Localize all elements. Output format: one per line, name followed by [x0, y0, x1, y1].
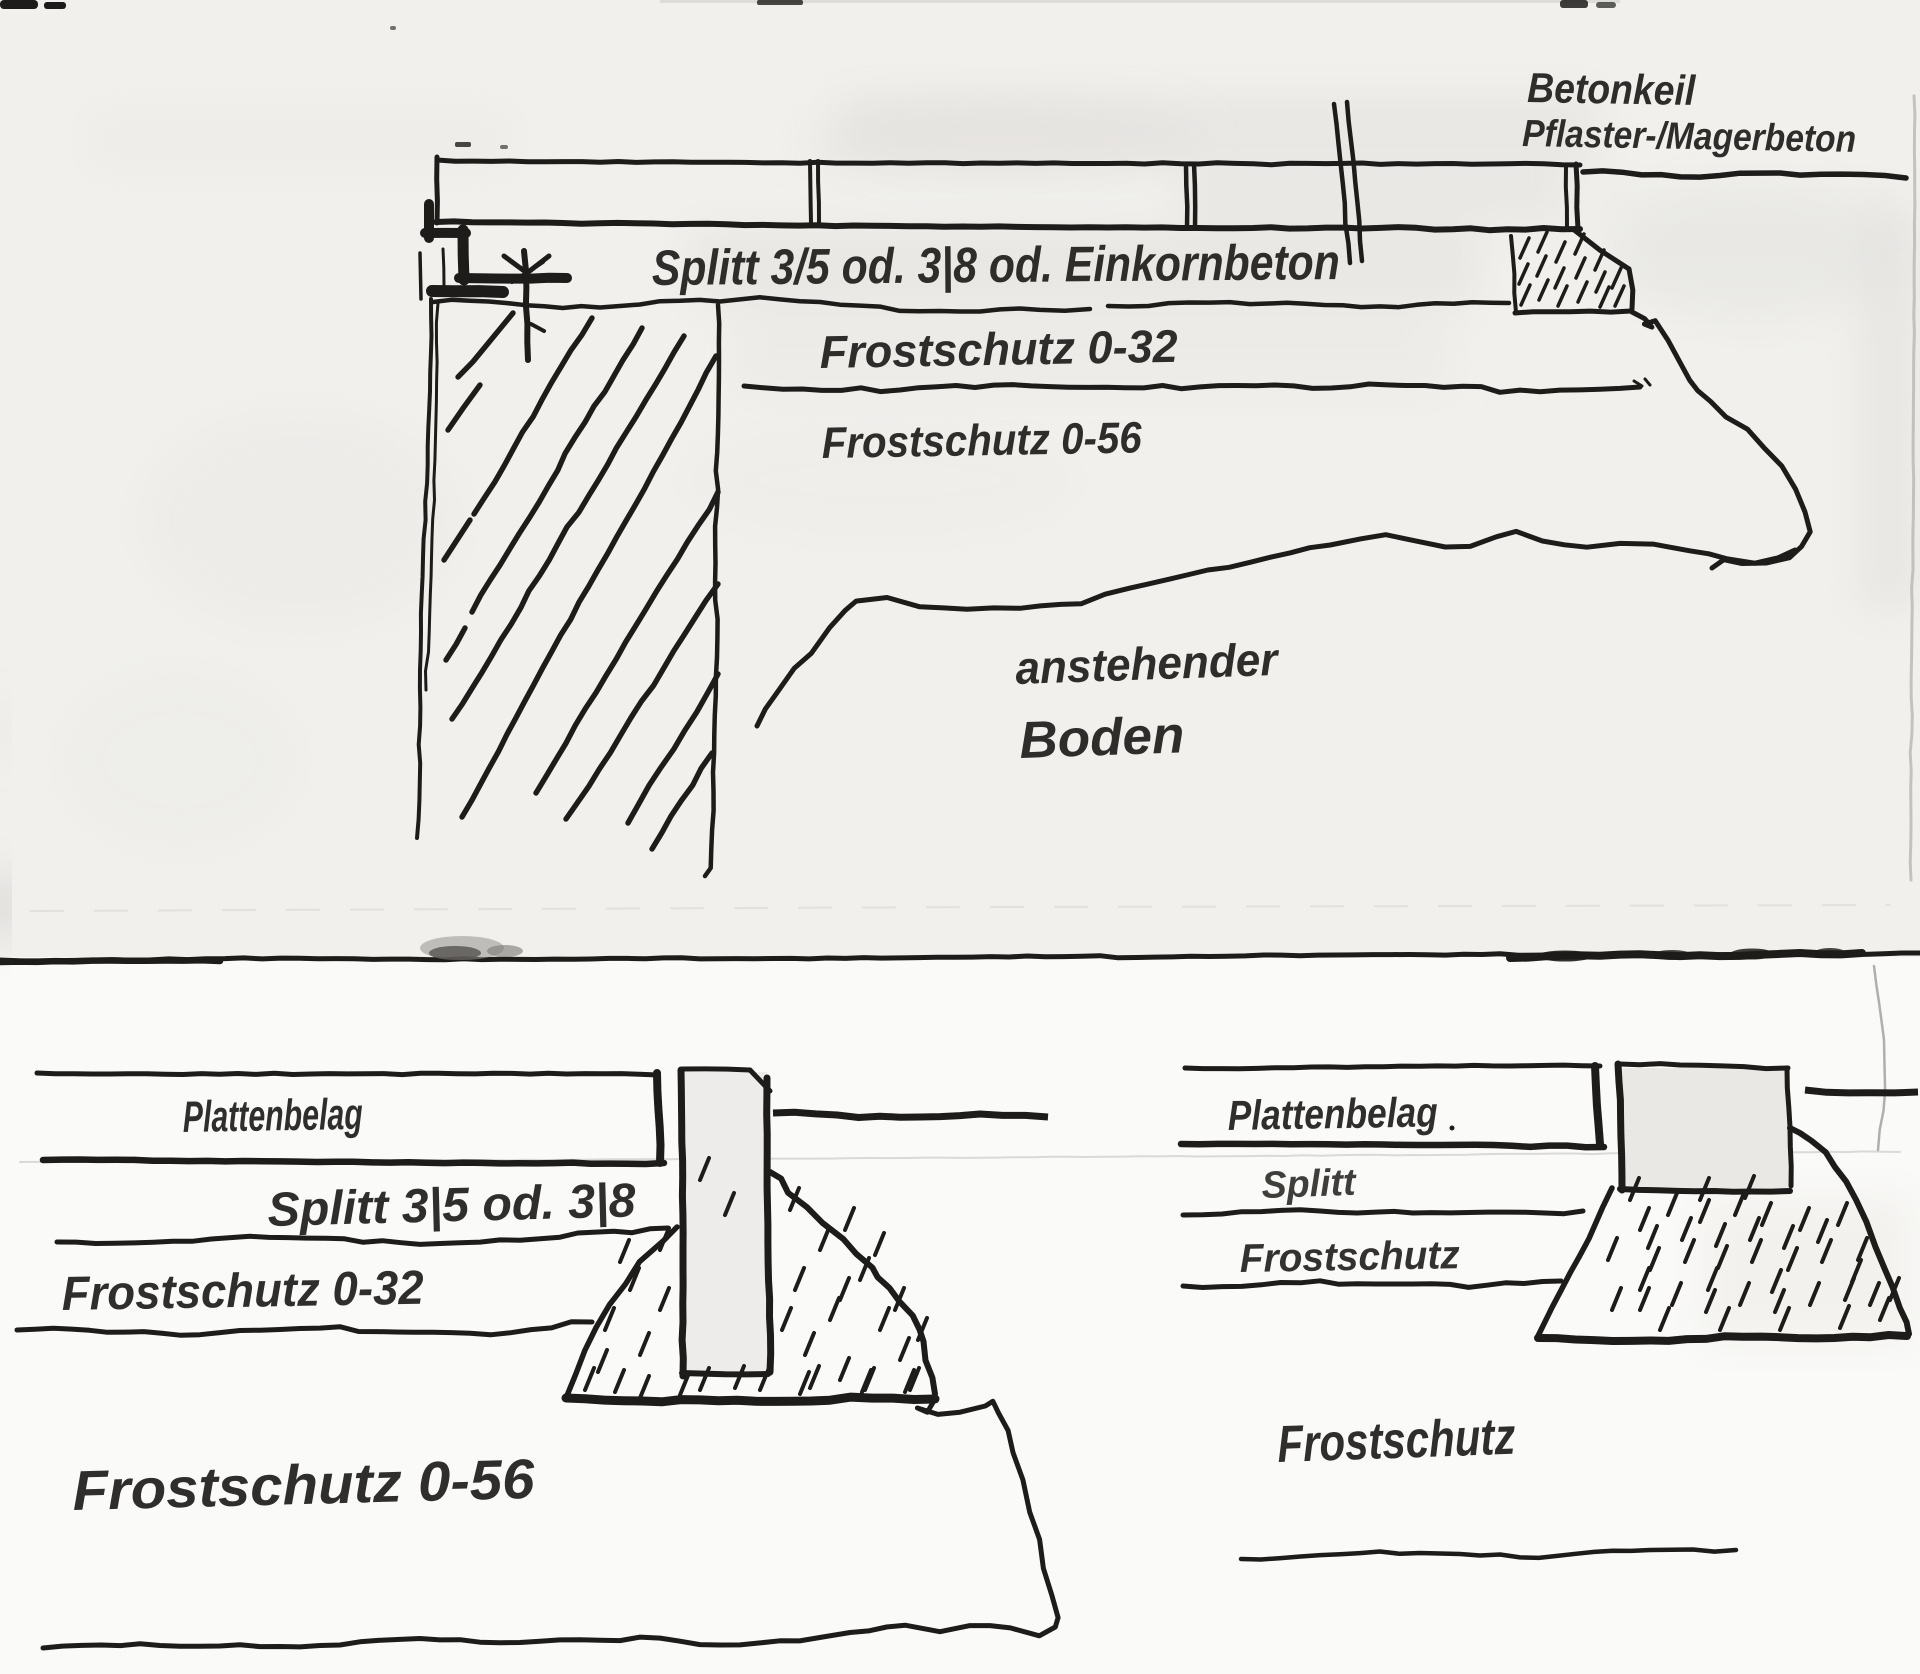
svg-text:Betonkeil: Betonkeil [1527, 64, 1697, 114]
svg-text:Plattenbelag: Plattenbelag [1227, 1088, 1438, 1139]
svg-text:Splitt 3|5 od. 3|8: Splitt 3|5 od. 3|8 [267, 1174, 637, 1237]
svg-text:Frostschutz 0-56: Frostschutz 0-56 [821, 413, 1142, 468]
svg-text:Splitt 3/5 od. 3|8 od. Einkorn: Splitt 3/5 od. 3|8 od. Einkornbeton [652, 234, 1340, 296]
svg-text:Frostschutz: Frostschutz [1239, 1233, 1460, 1281]
svg-text:Pflaster-/Magerbeton: Pflaster-/Magerbeton [1522, 113, 1857, 161]
svg-text:Frostschutz 0-56: Frostschutz 0-56 [72, 1447, 536, 1522]
svg-text:Splitt: Splitt [1261, 1162, 1358, 1207]
svg-text:Frostschutz: Frostschutz [1276, 1408, 1516, 1474]
svg-text:anstehender: anstehender [1015, 633, 1281, 694]
svg-text:Frostschutz 0-32: Frostschutz 0-32 [819, 320, 1178, 378]
svg-text:Plattenbelag: Plattenbelag [182, 1090, 363, 1142]
svg-text:Boden: Boden [1018, 706, 1185, 770]
svg-text:Frostschutz 0-32: Frostschutz 0-32 [61, 1262, 424, 1321]
